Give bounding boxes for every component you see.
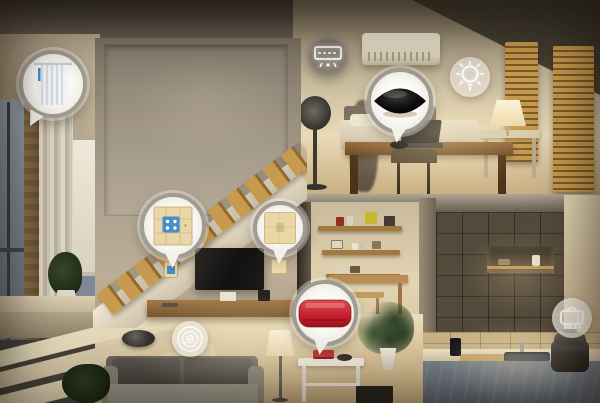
callout-light[interactable] (450, 57, 490, 97)
smart-home-render (0, 0, 600, 403)
callout-tail-wall-switch (164, 253, 181, 268)
callout-curtain[interactable] (19, 50, 87, 118)
blank-panel-icon (263, 211, 297, 245)
callout-ir-hub[interactable] (367, 68, 433, 134)
red-device-icon (297, 296, 353, 330)
vacuum-icon (175, 324, 205, 354)
callout-wall-switch[interactable] (140, 193, 206, 259)
bulb-icon (453, 60, 487, 94)
callout-ac-remote[interactable] (307, 36, 349, 78)
callout-rice-cooker[interactable] (552, 298, 592, 338)
curtain-icon (31, 59, 75, 109)
cooker-icon (556, 303, 588, 333)
switch-panel-icon (153, 206, 193, 246)
callout-layer (0, 0, 600, 403)
callout-scene-panel[interactable] (253, 201, 307, 255)
callout-power-device[interactable] (292, 280, 358, 346)
ir-hub-icon (371, 83, 429, 119)
callout-robot-vacuum[interactable] (172, 321, 208, 357)
ac-remote-icon (312, 43, 344, 71)
